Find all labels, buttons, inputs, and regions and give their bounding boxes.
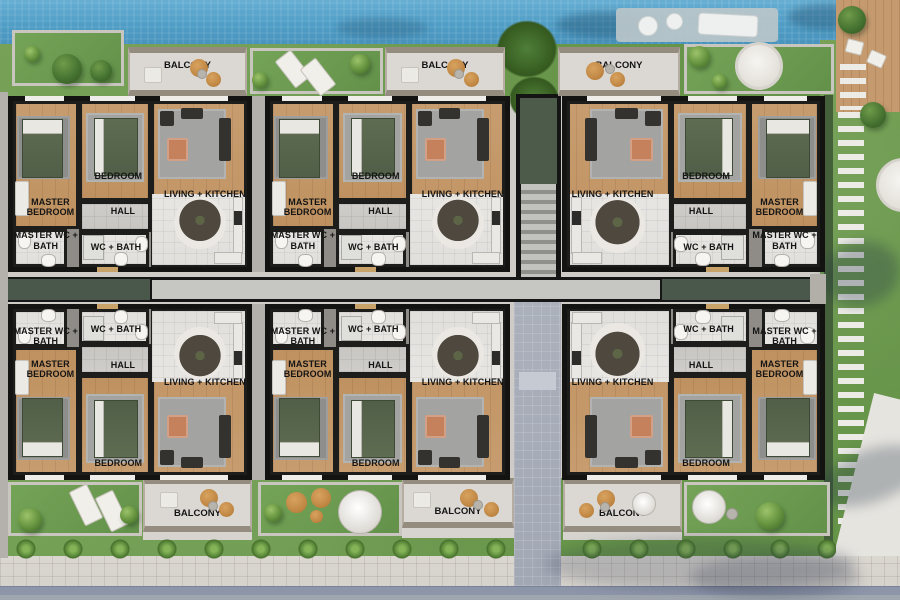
tree — [120, 506, 138, 524]
side-table — [726, 508, 738, 520]
label-bedroom: BEDROOM — [94, 458, 142, 468]
label-bedroom: BEDROOM — [682, 171, 730, 181]
unit-gap — [252, 96, 265, 272]
unit-labels: MASTER BEDROOM BEDROOM LIVING + KITCHEN … — [270, 309, 505, 475]
tree — [712, 74, 727, 89]
unit-labels: MASTER BEDROOM BEDROOM LIVING + KITCHEN … — [13, 309, 247, 475]
deck-steps — [840, 64, 866, 110]
label-hall: HALL — [689, 360, 713, 370]
balcony-bottom-middle: BALCONY — [402, 478, 514, 528]
parasol — [310, 510, 323, 523]
balcony-pouf — [206, 72, 221, 87]
label-master-bedroom: MASTER BEDROOM — [279, 359, 337, 379]
balcony-pouf — [586, 62, 604, 80]
label-master-wc-bath: MASTER WC + BATH — [270, 230, 336, 250]
label-living-kitchen: LIVING + KITCHEN — [422, 189, 504, 199]
window — [160, 475, 228, 480]
balcony-table — [208, 501, 218, 511]
label-hall: HALL — [111, 206, 135, 216]
unit-labels: MASTER BEDROOM BEDROOM LIVING + KITCHEN … — [567, 309, 820, 475]
pool-lounger — [697, 12, 758, 37]
balcony-pouf — [484, 502, 499, 517]
tree — [756, 502, 784, 530]
green-roof-strip — [516, 94, 561, 188]
window — [587, 475, 660, 480]
pool-daybed — [666, 13, 683, 30]
balcony-parasol — [632, 492, 656, 516]
round-daybed — [735, 42, 783, 90]
balcony-chair — [144, 67, 162, 83]
corridor-green-roof — [660, 277, 812, 302]
label-bedroom: BEDROOM — [352, 171, 400, 181]
balcony-top-left: BALCONY — [128, 47, 247, 96]
window — [90, 475, 134, 480]
unit-labels: MASTER BEDROOM BEDROOM LIVING + KITCHEN … — [567, 101, 820, 267]
balcony-chair — [160, 492, 178, 508]
balcony-table — [473, 500, 483, 510]
label-hall: HALL — [368, 206, 392, 216]
tree — [688, 46, 710, 68]
label-living-kitchen: LIVING + KITCHEN — [422, 377, 504, 387]
staircase — [516, 184, 561, 277]
unit-top-middle: MASTER BEDROOM BEDROOM LIVING + KITCHEN … — [265, 96, 510, 272]
window — [418, 475, 486, 480]
balcony-pouf — [579, 503, 594, 518]
balcony-table — [454, 69, 464, 79]
window — [764, 475, 807, 480]
label-bedroom: BEDROOM — [94, 171, 142, 181]
bush — [264, 504, 282, 522]
pool-daybed — [638, 16, 658, 36]
balcony-pouf — [219, 502, 234, 517]
label-wc-bath: WC + BATH — [683, 324, 733, 334]
label-living-kitchen: LIVING + KITCHEN — [164, 377, 246, 387]
balcony-table — [605, 64, 615, 74]
label-wc-bath: WC + BATH — [348, 242, 398, 252]
tree — [860, 102, 886, 128]
tree — [24, 46, 40, 62]
corridor-green-roof — [2, 277, 152, 302]
unit-bottom-left: MASTER BEDROOM BEDROOM LIVING + KITCHEN … — [8, 304, 252, 480]
balcony-bottom-left: BALCONY — [143, 478, 252, 532]
balcony-pouf — [610, 72, 625, 87]
building-edge — [810, 274, 826, 304]
unit-bottom-right: MASTER BEDROOM BEDROOM LIVING + KITCHEN … — [562, 304, 825, 480]
label-hall: HALL — [111, 360, 135, 370]
unit-top-right: MASTER BEDROOM BEDROOM LIVING + KITCHEN … — [562, 96, 825, 272]
balcony-pouf — [464, 72, 479, 87]
unit-gap — [252, 304, 265, 480]
balcony-top-middle: BALCONY — [385, 47, 505, 96]
corridor — [150, 277, 662, 302]
window — [25, 475, 65, 480]
label-master-wc-bath: MASTER WC + BATH — [270, 325, 336, 345]
window — [348, 475, 393, 480]
entry-door — [97, 267, 118, 272]
label-wc-bath: WC + BATH — [91, 242, 141, 252]
label-bedroom: BEDROOM — [352, 458, 400, 468]
label-wc-bath: WC + BATH — [348, 324, 398, 334]
parasol — [311, 488, 331, 508]
label-master-bedroom: MASTER BEDROOM — [751, 197, 809, 217]
unit-labels: MASTER BEDROOM BEDROOM LIVING + KITCHEN … — [270, 101, 505, 267]
label-living-kitchen: LIVING + KITCHEN — [572, 189, 654, 199]
tree — [838, 6, 866, 34]
label-wc-bath: WC + BATH — [91, 324, 141, 334]
label-master-wc-bath: MASTER WC + BATH — [752, 325, 818, 345]
window — [282, 475, 322, 480]
label-hall: HALL — [368, 360, 392, 370]
pool-shadow — [336, 18, 428, 38]
label-living-kitchen: LIVING + KITCHEN — [164, 189, 246, 199]
label-master-wc-bath: MASTER WC + BATH — [752, 230, 818, 250]
canopy-tent — [692, 490, 726, 524]
unit-top-left: MASTER BEDROOM BEDROOM LIVING + KITCHEN … — [8, 96, 252, 272]
balcony-table — [197, 69, 207, 79]
unit-labels: MASTER BEDROOM BEDROOM LIVING + KITCHEN … — [13, 101, 247, 267]
balcony-top-right: BALCONY — [558, 47, 680, 96]
label-master-bedroom: MASTER BEDROOM — [21, 197, 79, 217]
tree — [18, 508, 42, 532]
balcony-bottom-right: BALCONY — [563, 478, 682, 532]
unit-bottom-middle: MASTER BEDROOM BEDROOM LIVING + KITCHEN … — [265, 304, 510, 480]
building-edge — [0, 92, 8, 558]
entry-door — [355, 267, 376, 272]
floor-plan: BALCONY BALCONY BALCONY BALCONY BALCONY … — [0, 0, 900, 600]
label-master-bedroom: MASTER BEDROOM — [751, 359, 809, 379]
tree — [252, 72, 268, 88]
walkway-landing — [519, 372, 556, 390]
tree — [52, 54, 82, 84]
label-hall: HALL — [689, 206, 713, 216]
balcony-chair — [413, 492, 431, 508]
tree — [90, 60, 112, 82]
window — [688, 475, 736, 480]
canopy-tent — [338, 490, 382, 534]
balcony-chair — [401, 67, 419, 83]
walkway — [514, 302, 561, 586]
bush-row — [14, 538, 514, 562]
label-bedroom: BEDROOM — [682, 458, 730, 468]
tree-shadow — [690, 556, 860, 598]
label-master-wc-bath: MASTER WC + BATH — [13, 325, 79, 345]
label-living-kitchen: LIVING + KITCHEN — [572, 377, 654, 387]
entry-door — [706, 267, 729, 272]
tree — [350, 54, 370, 74]
label-master-wc-bath: MASTER WC + BATH — [13, 230, 79, 250]
label-wc-bath: WC + BATH — [683, 242, 733, 252]
parasol — [286, 492, 307, 513]
label-master-bedroom: MASTER BEDROOM — [279, 197, 337, 217]
label-master-bedroom: MASTER BEDROOM — [21, 359, 79, 379]
balcony-table — [600, 502, 610, 512]
